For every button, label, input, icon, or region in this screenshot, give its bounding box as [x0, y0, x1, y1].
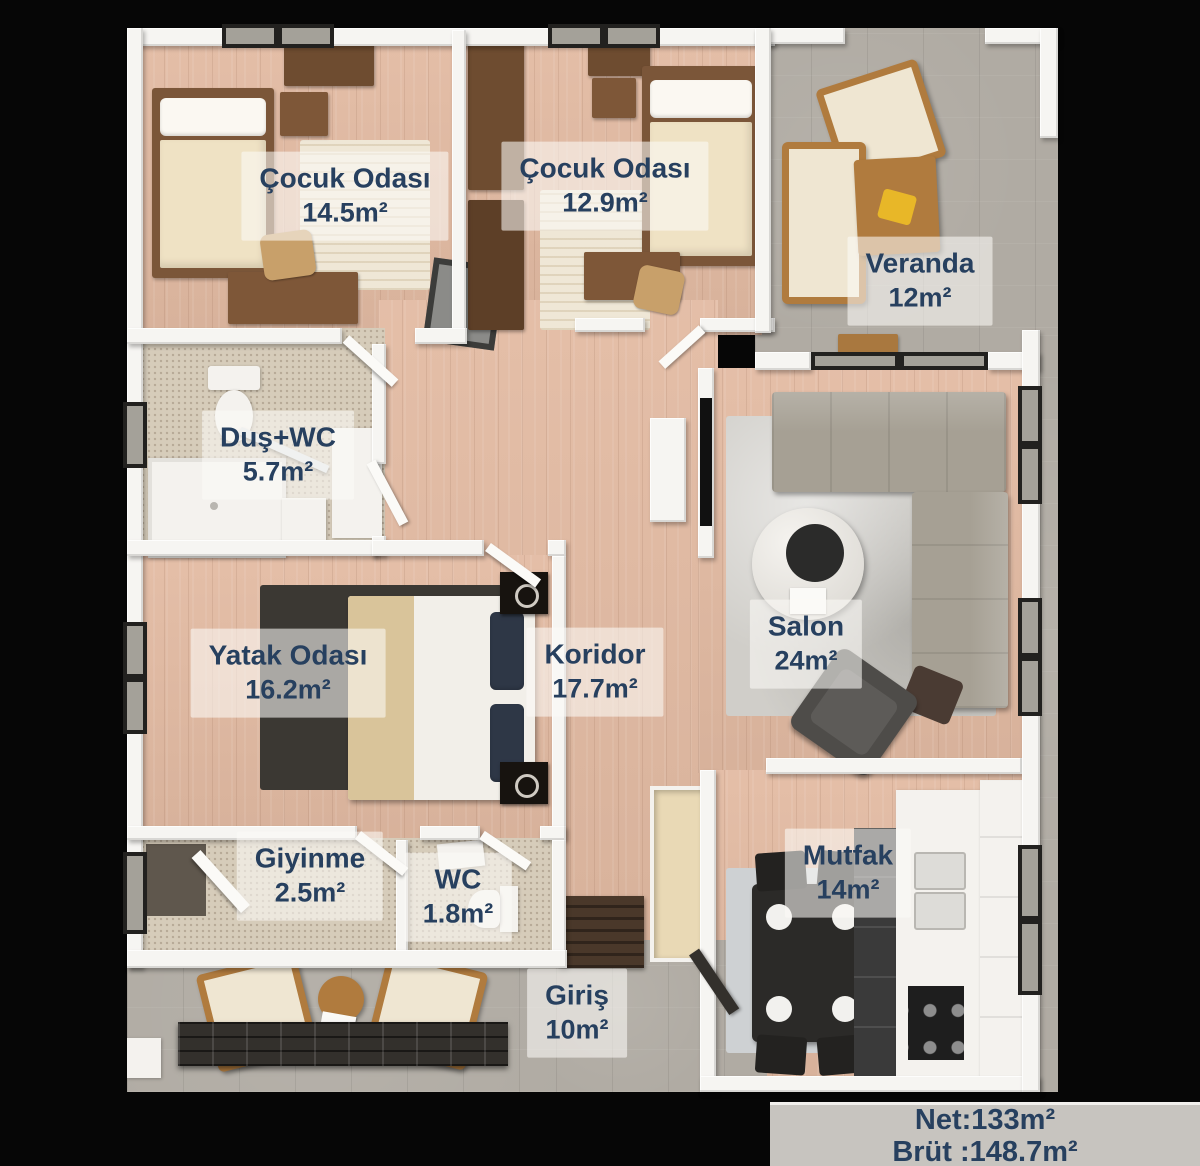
room-name: Salon [768, 610, 844, 644]
room-area: 10m² [545, 1012, 609, 1047]
room-label-shower-wc: Duş+WC 5.7m² [202, 411, 354, 500]
wall-dressing-top-mid [420, 826, 480, 840]
window-kitchen [1018, 845, 1042, 995]
room-area: 5.7m² [220, 454, 336, 489]
room-name: Veranda [866, 247, 975, 281]
tv-panel [700, 398, 712, 526]
nightstand-child-2 [592, 78, 636, 118]
net-area-text: Net:133m² [915, 1105, 1055, 1137]
kitchen-tall-cabinets [980, 780, 1022, 1078]
window-shower-room [123, 402, 147, 468]
wall-outer-bottom-left [127, 950, 567, 968]
wall-master-top-stub [548, 540, 566, 556]
room-name: Çocuk Odası [259, 162, 430, 196]
room-label-child-room-1: Çocuk Odası 14.5m² [241, 152, 448, 241]
room-name: Koridor [544, 638, 645, 672]
window-child1 [222, 24, 334, 48]
entry-bench [558, 896, 644, 968]
room-name: Giyinme [255, 842, 365, 876]
desk-chair-child-2 [632, 264, 686, 317]
wall-children-divider [452, 30, 466, 330]
room-label-child-room-2: Çocuk Odası 12.9m² [501, 142, 708, 231]
room-label-master-bedroom: Yatak Odası 16.2m² [191, 629, 386, 718]
room-name: Yatak Odası [209, 639, 368, 673]
wall-dressing-top-right [540, 826, 566, 840]
room-name: Mutfak [803, 839, 893, 873]
area-summary-box: Net:133m² Brüt :148.7m² [770, 1102, 1200, 1166]
room-area: 24m² [768, 643, 844, 678]
kitchen-sink-basin [914, 852, 966, 890]
wall-kitchen-bottom [700, 1076, 1040, 1092]
wall-veranda-right-corner [1040, 28, 1058, 138]
wall-kitchen-left [700, 770, 716, 1092]
floor-plan-render: Çocuk Odası 14.5m² Çocuk Odası 12.9m² Ve… [0, 0, 1200, 1166]
kitchen-sink-basin [914, 892, 966, 930]
sofa-sectional-horizontal [772, 392, 1006, 492]
room-label-dressing: Giyinme 2.5m² [237, 832, 383, 921]
speaker-bottom [500, 762, 548, 804]
wall-salon-kitchen-divider [766, 758, 1022, 774]
wall-wc-right [552, 840, 566, 962]
step-block [127, 1038, 161, 1078]
window-child2 [548, 24, 660, 48]
room-label-corridor: Koridor 17.7m² [526, 628, 663, 717]
room-area: 1.8m² [423, 896, 494, 931]
floor-right-side-strip [1040, 330, 1058, 1092]
room-name: Çocuk Odası [519, 152, 690, 186]
stove [908, 986, 964, 1060]
room-name: Duş+WC [220, 421, 336, 455]
wall-master-top [372, 540, 484, 556]
window-living-room-2 [1018, 598, 1042, 716]
room-label-living-room: Salon 24m² [750, 600, 862, 689]
room-name: Giriş [545, 979, 609, 1013]
window-master-bedroom [123, 622, 147, 734]
wall-veranda-salon-left [755, 352, 811, 370]
room-area: 16.2m² [209, 672, 368, 707]
room-label-kitchen: Mutfak 14m² [785, 829, 911, 918]
wall-below-child2-left [575, 318, 645, 332]
sliding-door-veranda [811, 352, 988, 370]
gross-area-text: Brüt :148.7m² [892, 1137, 1077, 1166]
room-area: 12m² [866, 280, 975, 315]
wall-below-shower [127, 540, 377, 556]
room-area: 2.5m² [255, 875, 365, 910]
room-area: 17.7m² [544, 671, 645, 706]
room-area: 14.5m² [259, 195, 430, 230]
room-area: 12.9m² [519, 185, 690, 220]
toilet-shower-room [208, 366, 260, 390]
desk-child-1 [228, 272, 358, 324]
corridor-column-panel [650, 418, 686, 522]
entrance-steps [178, 1022, 508, 1066]
nightstand-child-1 [280, 92, 328, 136]
room-label-veranda: Veranda 12m² [848, 237, 993, 326]
room-area: 14m² [803, 872, 893, 907]
window-living-room-1 [1018, 386, 1042, 504]
room-name: WC [423, 863, 494, 897]
wall-child2-veranda-divider [755, 28, 771, 333]
dining-chair [755, 1034, 808, 1075]
wall-below-child1-right [415, 328, 467, 344]
room-label-entry: Giriş 10m² [527, 969, 627, 1058]
wall-below-child1-left [127, 328, 342, 344]
window-dressing [123, 852, 147, 934]
room-label-wc: WC 1.8m² [405, 853, 512, 942]
